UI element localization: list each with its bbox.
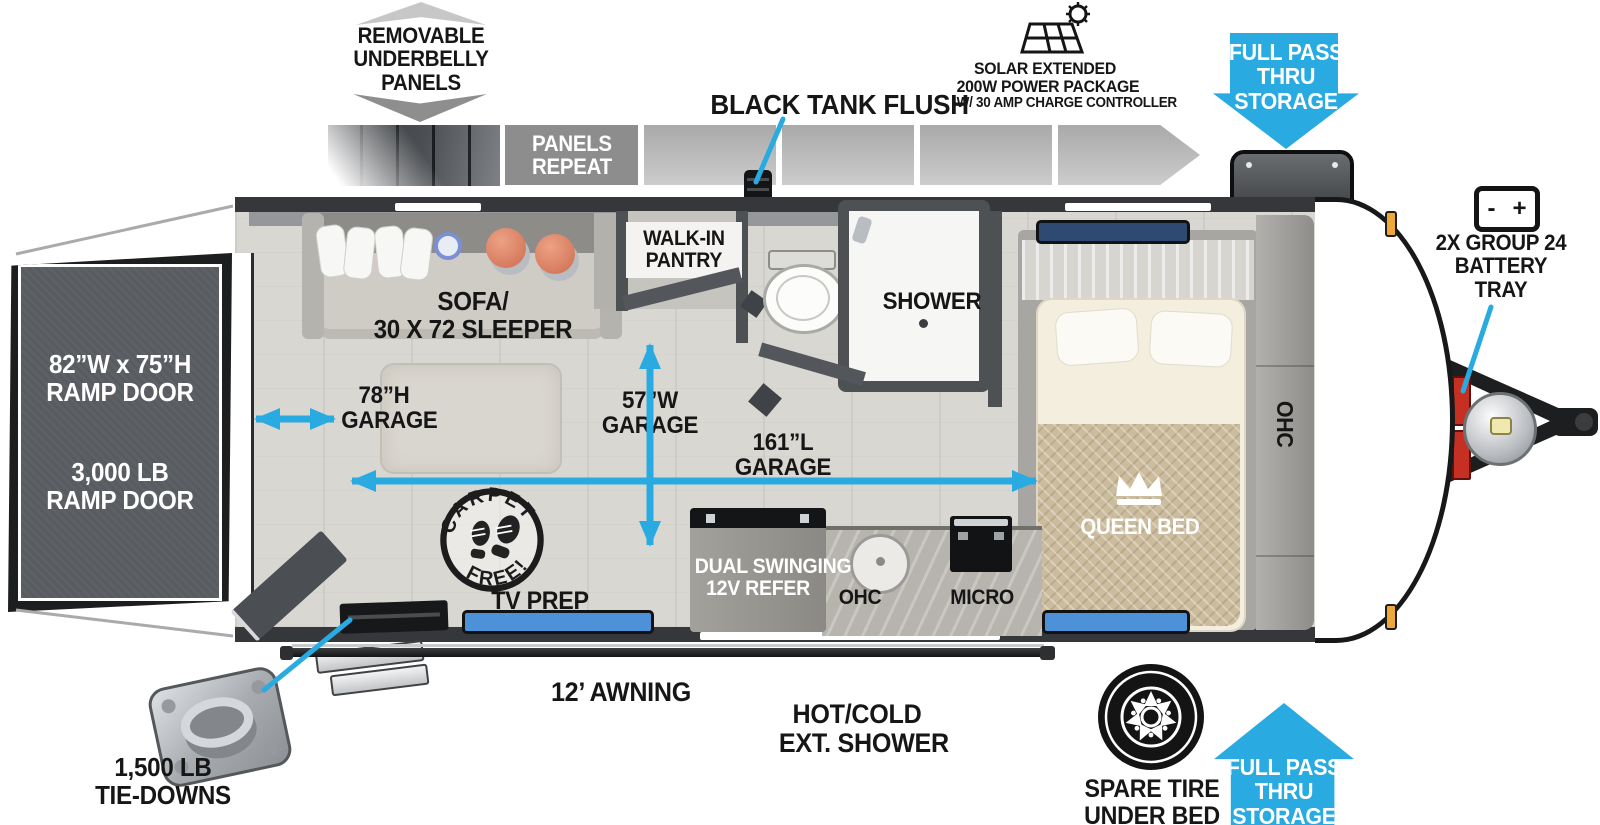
- refrigerator: DUAL SWINGING 12V REFER: [690, 508, 826, 632]
- bedding-foot: [1022, 240, 1254, 300]
- pantry-label: WALK-IN PANTRY: [643, 228, 725, 273]
- refrigerator-label: DUAL SWINGING 12V REFER: [695, 556, 821, 601]
- garage-height-label: 78”H GARAGE: [341, 383, 427, 434]
- wall-trim: [1065, 203, 1211, 211]
- pass-thru-front-arrow: FULL PASS THRU STORAGE: [1213, 33, 1359, 149]
- solar-package-label: SOLAR EXTENDED 200W POWER PACKAGE W/ 30 …: [957, 60, 1134, 111]
- pass-thru-front-label: FULL PASS THRU STORAGE: [1218, 40, 1354, 113]
- panel-segment: [920, 125, 1052, 185]
- wall-trim: [395, 203, 481, 211]
- crown-icon: [1108, 468, 1170, 508]
- marker-light: [1385, 211, 1397, 237]
- ramp-door-capacity-label: 3,000 LB RAMP DOOR: [28, 459, 212, 514]
- battery-icon: -+: [1474, 186, 1540, 232]
- shower-label: SHOWER: [872, 289, 991, 314]
- pass-thru-rear-label: FULL PASS THRU STORAGE: [1219, 755, 1349, 825]
- pillow: [342, 226, 376, 281]
- pass-thru-rear-arrow: FULL PASS THRU STORAGE: [1214, 703, 1354, 825]
- panel-segment: [782, 125, 914, 185]
- sofa-label: SOFA/ 30 X 72 SLEEPER: [368, 288, 578, 343]
- ramp-perspective-line: [16, 206, 233, 254]
- solar-panel-icon: [1018, 2, 1096, 62]
- microwave-stove: [950, 516, 1012, 572]
- spare-tire-icon: [1096, 662, 1206, 772]
- panels-repeat-label: PANELS REPEAT: [532, 132, 612, 179]
- ramp-door-size-label: 82”W x 75”H RAMP DOOR: [28, 351, 212, 406]
- stool: [535, 234, 575, 274]
- kitchen-sink: [850, 534, 910, 594]
- shower-drain: [919, 319, 928, 328]
- stool: [486, 228, 526, 268]
- awning-end-cap: [280, 646, 293, 660]
- garage-width-label: 57”W GARAGE: [602, 388, 699, 439]
- pillow: [1149, 310, 1234, 368]
- underbelly-panel-photo: [328, 125, 500, 186]
- garage-length-label: 161”L GARAGE: [726, 430, 839, 481]
- awning-label: 12’ AWNING: [550, 678, 691, 707]
- black-tank-flush-label: BLACK TANK FLUSH: [710, 90, 907, 120]
- floorplan-diagram: REMOVABLE UNDERBELLY PANELS PANELS REPEA…: [0, 0, 1600, 825]
- awning-end-cap: [1040, 646, 1055, 660]
- panels-repeat-box: PANELS REPEAT: [505, 125, 638, 185]
- micro-label: MICRO: [950, 587, 1010, 609]
- ext-shower-label: HOT/COLD EXT. SHOWER: [779, 700, 935, 757]
- queen-bed-label: QUEEN BED: [1080, 515, 1197, 538]
- cup: [434, 232, 462, 260]
- tie-downs-label: 1,500 LB TIE-DOWNS: [93, 754, 233, 809]
- ramp-perspective-line: [16, 610, 233, 636]
- ohc-bedroom-label: OHC: [1273, 399, 1297, 449]
- panel-segment-arrow: [1058, 125, 1200, 185]
- pillow: [1054, 307, 1140, 367]
- underbelly-down-arrow-icon: [353, 94, 487, 122]
- marker-light: [1385, 604, 1397, 630]
- shower-head: [851, 215, 872, 244]
- toilet: [763, 264, 845, 334]
- battery-tray-label: 2X GROUP 24 BATTERY TRAY: [1415, 231, 1588, 301]
- underbelly-up-arrow-icon: [356, 2, 486, 25]
- tv-bracket: [340, 600, 449, 634]
- awning-bar: [283, 648, 1049, 657]
- underbelly-label: REMOVABLE UNDERBELLY PANELS: [342, 24, 500, 94]
- ramp-door: 82”W x 75”H RAMP DOOR 3,000 LB RAMP DOOR: [8, 253, 232, 612]
- carpet-free-stamp: CARPET FREE!: [429, 477, 554, 602]
- awning-rail: [292, 644, 1044, 647]
- bedroom-window: [1042, 610, 1190, 634]
- window: [462, 610, 654, 634]
- bedroom-window: [1036, 220, 1190, 244]
- ramp-opening: [233, 253, 254, 612]
- ohc-kitchen-label: OHC: [834, 587, 886, 609]
- propane-tank: [1463, 392, 1537, 466]
- spare-tire-label: SPARE TIRE UNDER BED: [1083, 776, 1221, 825]
- bedroom-wall: [988, 211, 1002, 407]
